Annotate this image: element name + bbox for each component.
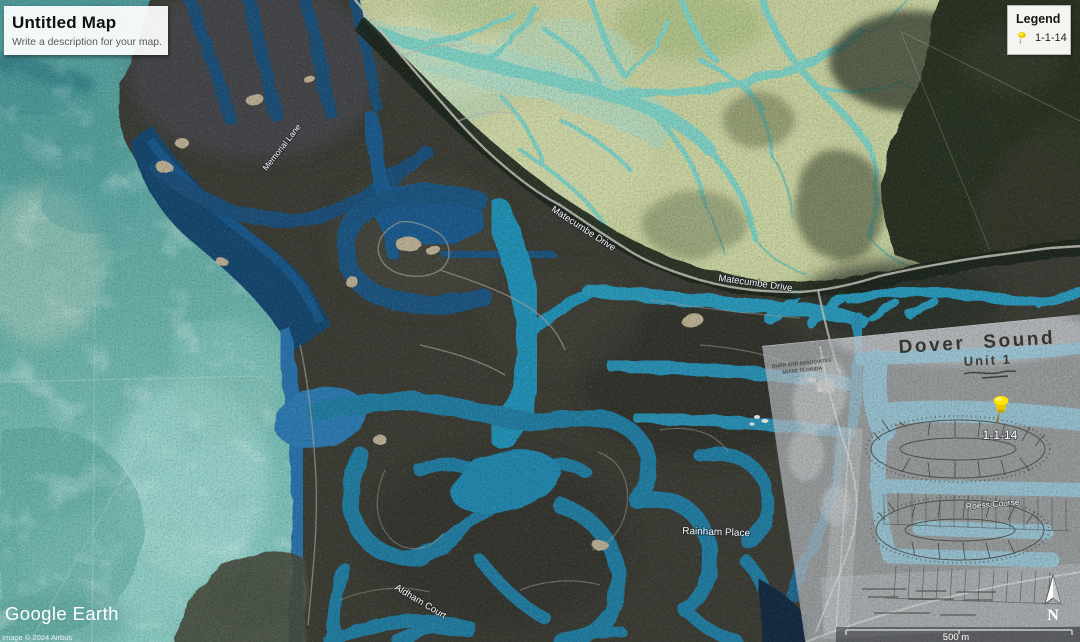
svg-text:1-1-14: 1-1-14 bbox=[983, 428, 1018, 442]
svg-text:Image © 2024 Airbus: Image © 2024 Airbus bbox=[2, 633, 72, 642]
svg-text:N: N bbox=[1047, 607, 1059, 624]
svg-text:500 m: 500 m bbox=[943, 632, 969, 642]
svg-text:Google Earth: Google Earth bbox=[5, 603, 119, 624]
